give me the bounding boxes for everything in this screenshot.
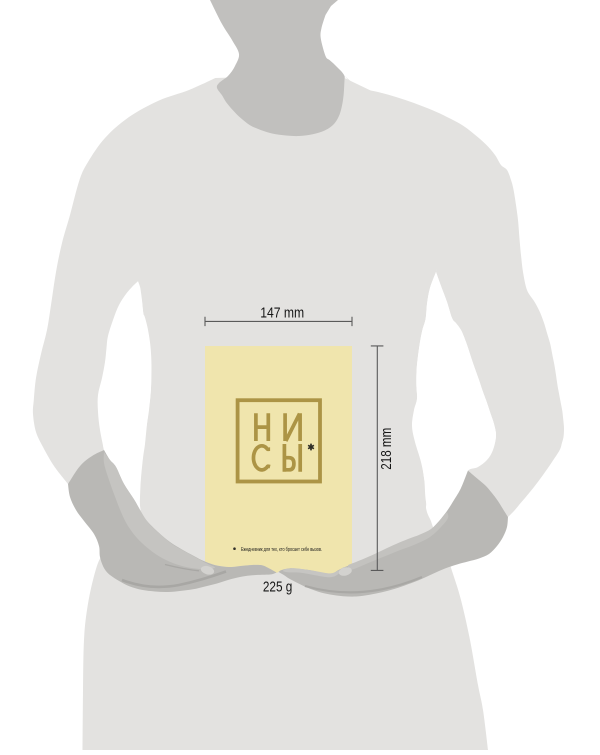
svg-text:225 g: 225 g [263, 579, 293, 596]
svg-text:Ежедневник для тех, кто бросае: Ежедневник для тех, кто бросает себе выз… [241, 547, 322, 553]
svg-text:218 mm: 218 mm [378, 428, 395, 470]
svg-text:147 mm: 147 mm [260, 305, 304, 322]
